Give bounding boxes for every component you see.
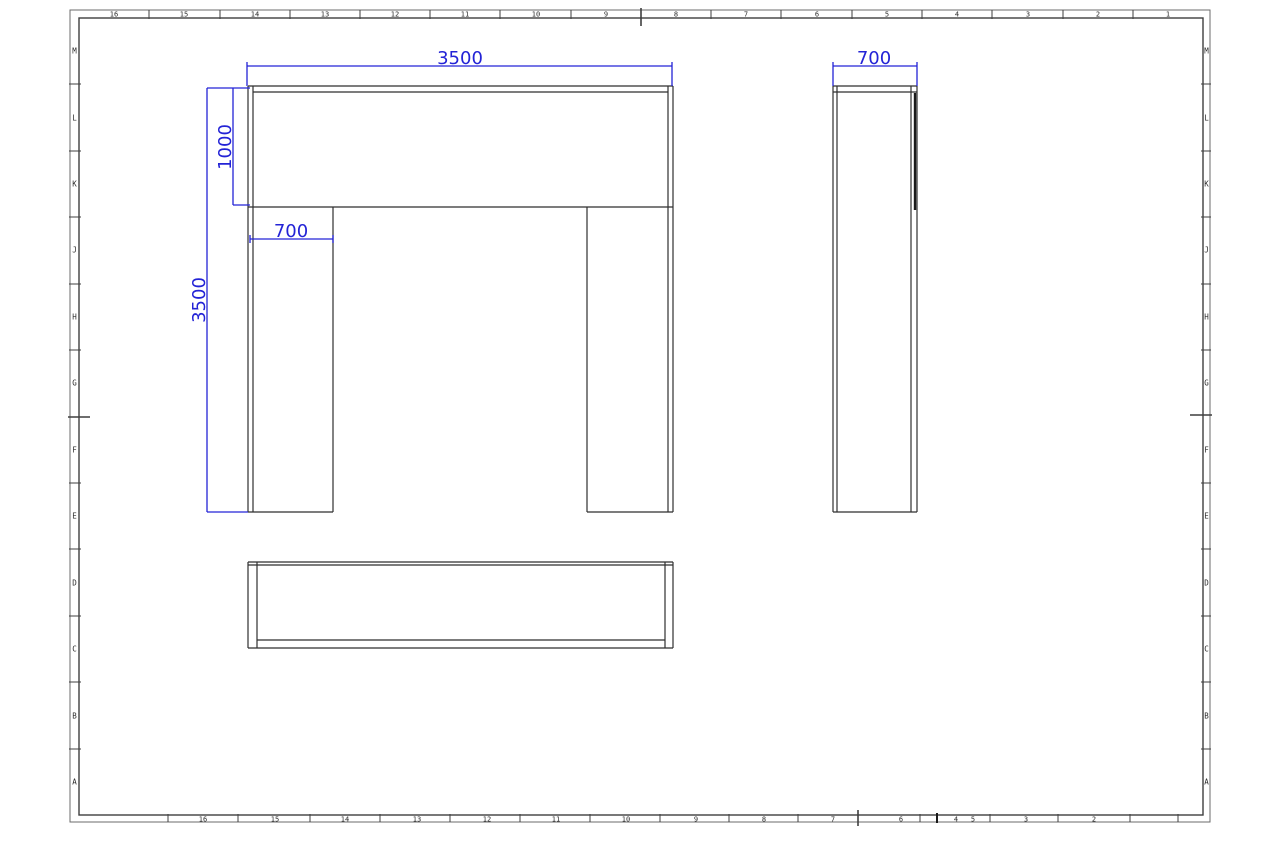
zone-label-right-B: B — [1204, 712, 1209, 721]
zone-label-top-2: 2 — [1096, 11, 1100, 19]
zone-label-top-13: 13 — [321, 11, 329, 19]
dim-value-front-leg-width: 700 — [274, 221, 308, 242]
zone-label-right-H: H — [1204, 313, 1209, 322]
side-view — [833, 86, 917, 512]
dimension-front-overall-width: 3500 — [247, 48, 672, 86]
drawing-sheet[interactable]: 1615141312111098765432116151413121110987… — [0, 0, 1286, 864]
zone-label-bottom-11: 11 — [552, 816, 560, 824]
dim-value-front-beam-height: 1000 — [215, 124, 236, 170]
zone-label-top-8: 8 — [674, 11, 678, 19]
zone-label-left-H: H — [72, 313, 77, 322]
zone-label-left-E: E — [72, 512, 77, 521]
zone-label-bottom-10: 10 — [622, 816, 630, 824]
zone-label-bottom-15: 15 — [271, 816, 279, 824]
zone-label-right-G: G — [1204, 379, 1209, 388]
zone-label-bottom-9: 9 — [694, 816, 698, 824]
zone-label-top-14: 14 — [251, 11, 259, 19]
zone-label-top-4: 4 — [955, 11, 959, 19]
plan-view — [248, 562, 673, 648]
zone-label-right-D: D — [1204, 579, 1209, 588]
zone-label-left-M: M — [72, 47, 77, 56]
zone-label-right-M: M — [1204, 47, 1209, 56]
zone-label-left-L: L — [72, 114, 77, 123]
sheet-frame — [70, 10, 1210, 822]
zone-label-bottom-7: 7 — [831, 816, 835, 824]
dim-value-front-overall-height: 3500 — [189, 277, 210, 323]
zone-label-bottom-5: 5 — [971, 816, 975, 824]
zone-label-right-L: L — [1204, 114, 1209, 123]
zone-label-top-15: 15 — [180, 11, 188, 19]
zone-label-top-10: 10 — [532, 11, 540, 19]
zone-label-left-B: B — [72, 712, 77, 721]
dimension-front-beam-height: 1000 — [207, 88, 250, 205]
zone-label-top-1: 1 — [1166, 11, 1170, 19]
dimension-front-leg-width: 700 — [250, 221, 333, 243]
outer-border — [70, 10, 1210, 822]
zone-label-bottom-14: 14 — [341, 816, 349, 824]
zone-label-bottom-4: 4 — [954, 816, 958, 824]
zone-label-left-C: C — [72, 645, 77, 654]
zone-label-right-K: K — [1204, 180, 1209, 189]
zone-label-right-J: J — [1204, 246, 1209, 255]
zone-label-right-F: F — [1204, 446, 1209, 455]
dim-value-side-width: 700 — [857, 48, 891, 69]
zone-label-right-A: A — [1204, 778, 1209, 787]
zone-label-top-5: 5 — [885, 11, 889, 19]
zone-label-top-3: 3 — [1026, 11, 1030, 19]
zone-label-left-J: J — [72, 246, 77, 255]
zone-label-left-G: G — [72, 379, 77, 388]
dim-value-front-overall-width: 3500 — [437, 48, 483, 69]
zone-label-top-12: 12 — [391, 11, 399, 19]
zone-label-bottom-16: 16 — [199, 816, 207, 824]
zone-label-bottom-12: 12 — [483, 816, 491, 824]
zone-label-bottom-8: 8 — [762, 816, 766, 824]
zone-label-bottom-6: 6 — [899, 816, 903, 824]
zone-label-left-K: K — [72, 180, 77, 189]
zone-label-top-9: 9 — [604, 11, 608, 19]
zone-label-bottom-2: 2 — [1092, 816, 1096, 824]
zone-label-right-C: C — [1204, 645, 1209, 654]
zone-label-top-6: 6 — [815, 11, 819, 19]
zone-label-top-16: 16 — [110, 11, 118, 19]
zone-label-left-D: D — [72, 579, 77, 588]
zone-label-left-F: F — [72, 446, 77, 455]
zone-label-right-E: E — [1204, 512, 1209, 521]
zone-rulers: 1615141312111098765432116151413121110987… — [68, 8, 1212, 826]
cad-viewport[interactable]: 1615141312111098765432116151413121110987… — [0, 0, 1286, 864]
zone-label-top-7: 7 — [744, 11, 748, 19]
dimensions: 350010003500700700 — [189, 48, 917, 512]
zone-label-top-11: 11 — [461, 11, 469, 19]
zone-label-bottom-13: 13 — [413, 816, 421, 824]
front-view — [248, 86, 673, 512]
zone-label-bottom-3: 3 — [1024, 816, 1028, 824]
zone-label-left-A: A — [72, 778, 77, 787]
dimension-side-width: 700 — [833, 48, 917, 86]
